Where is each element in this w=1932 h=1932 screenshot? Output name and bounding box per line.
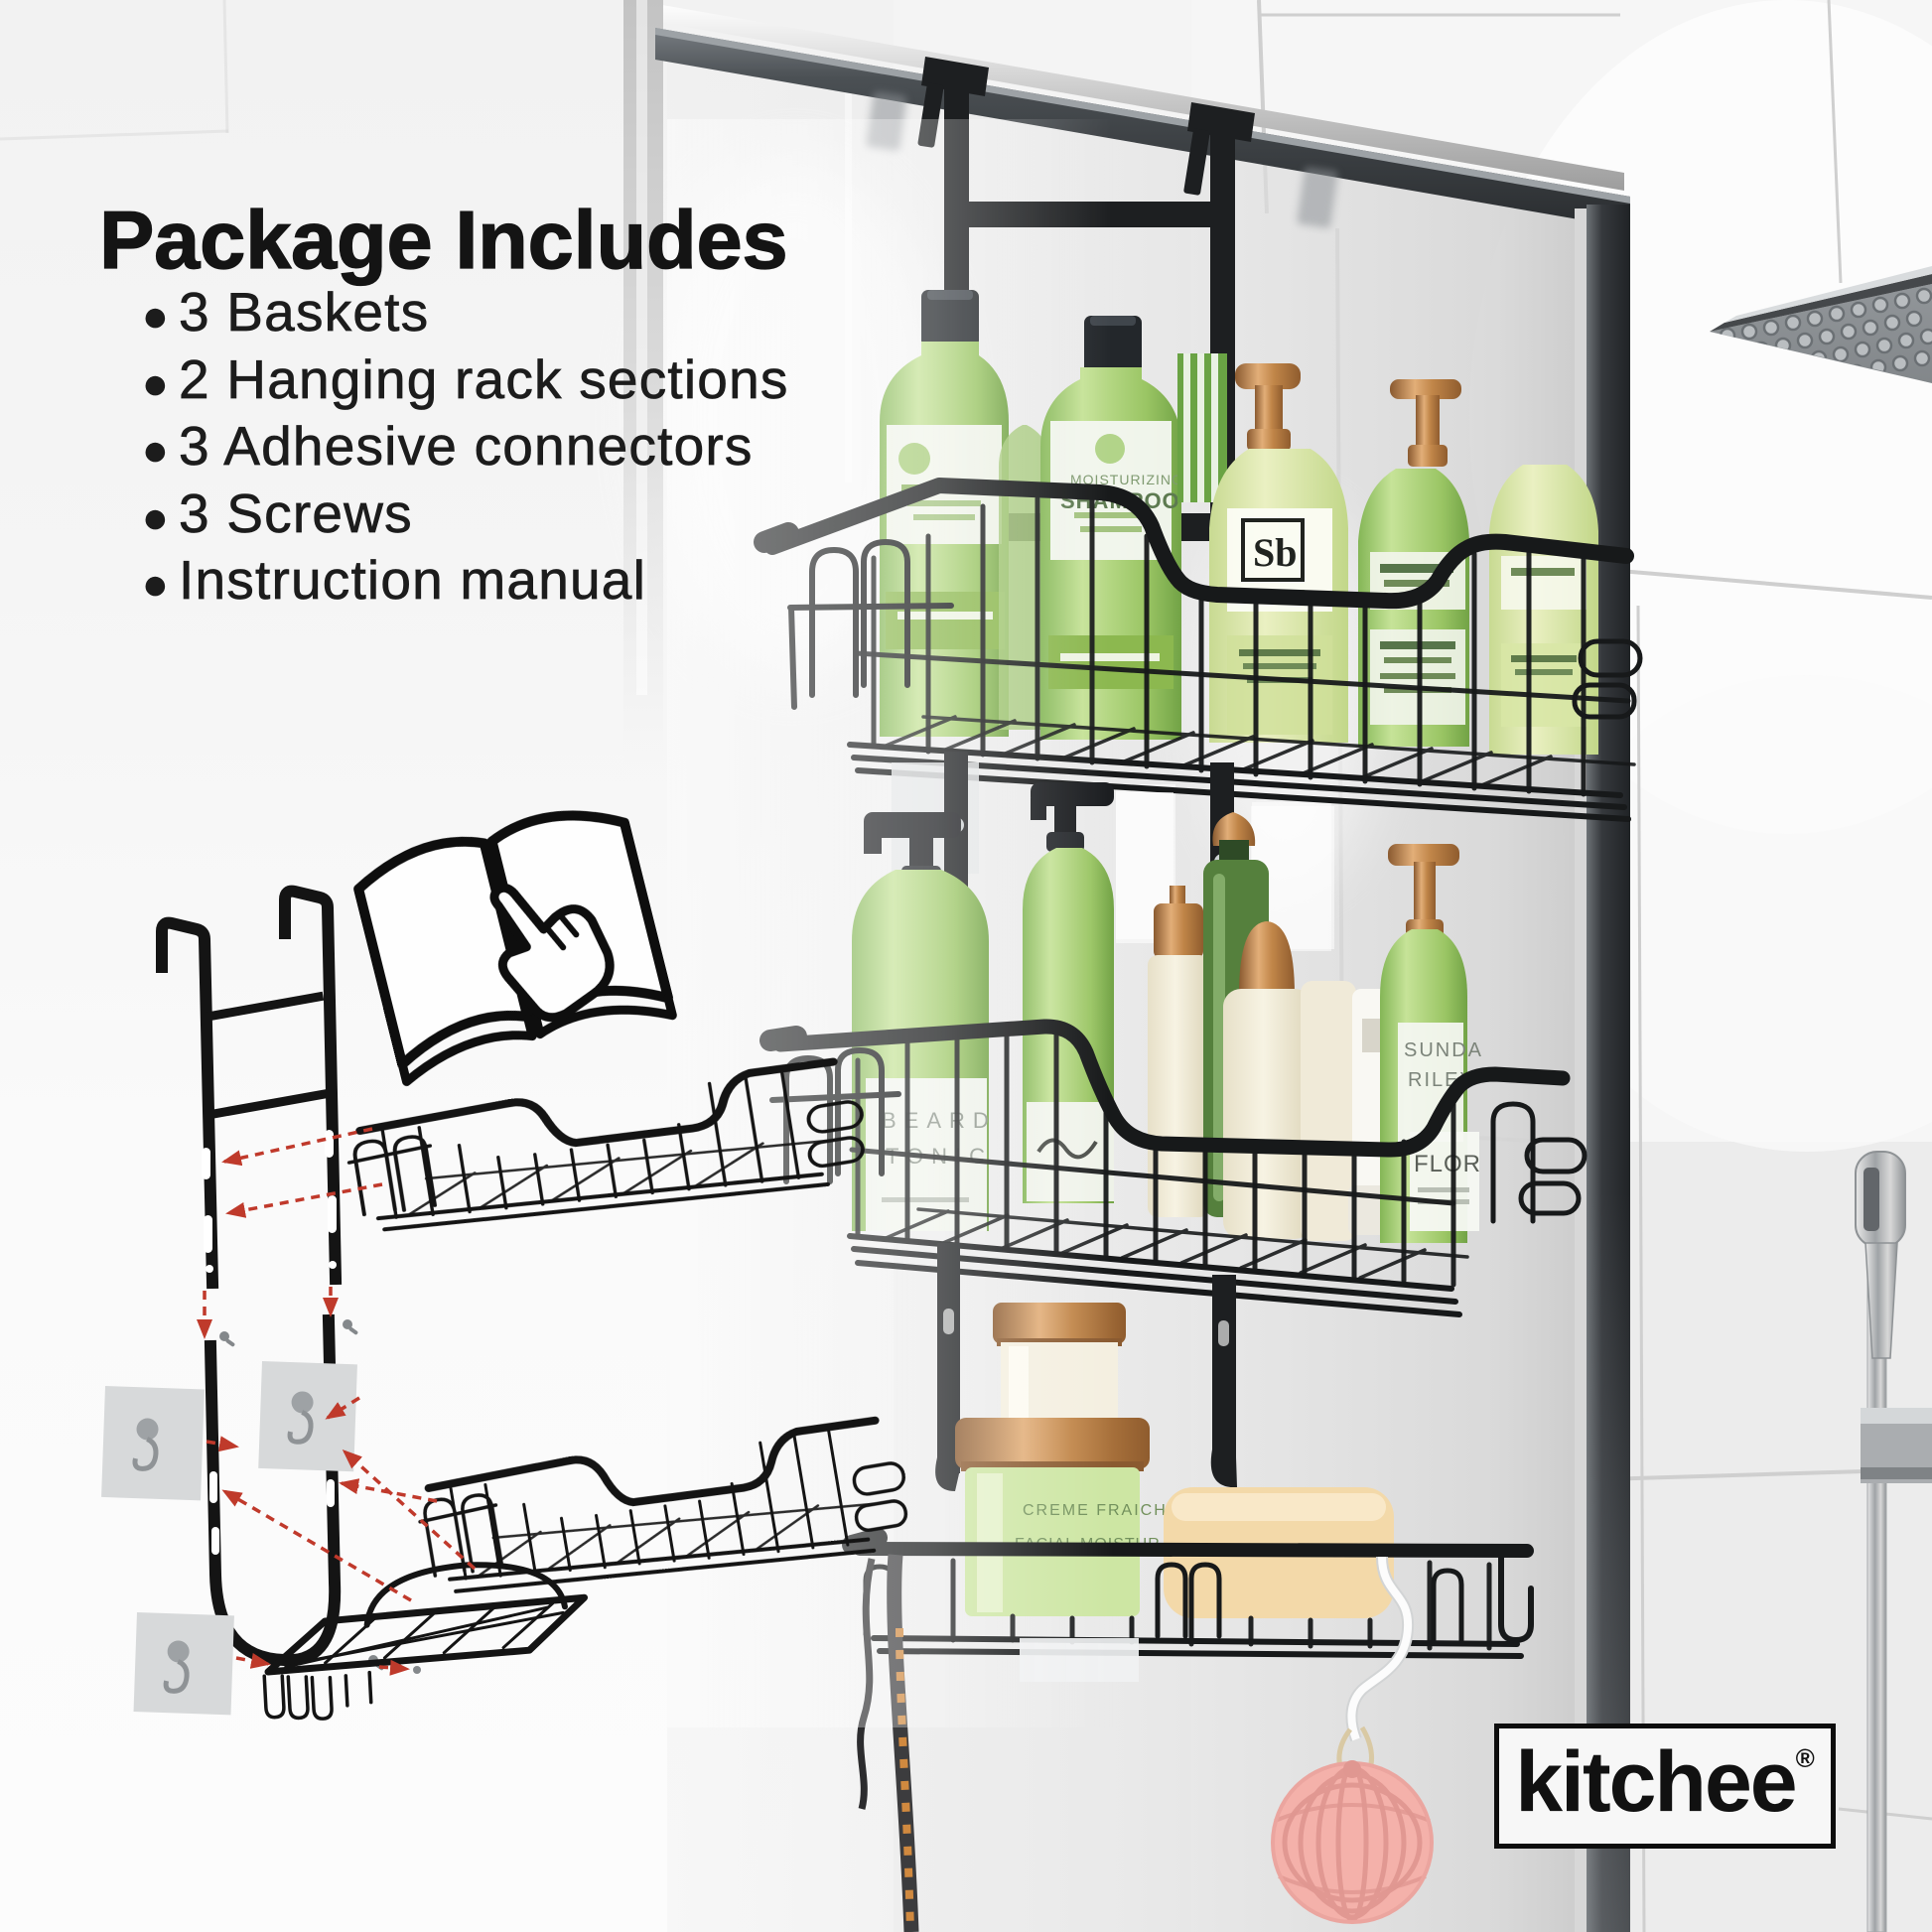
svg-text:SUNDA: SUNDA — [1404, 1039, 1483, 1061]
svg-text:FLOR: FLOR — [1414, 1151, 1481, 1177]
svg-text:Sb: Sb — [1253, 530, 1298, 575]
